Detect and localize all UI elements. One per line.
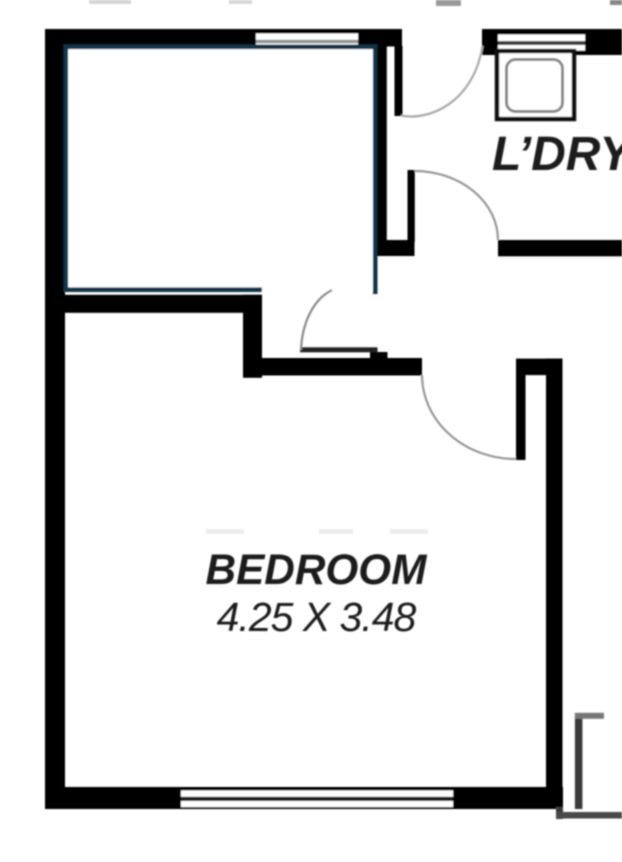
svg-text:BEDROOM: BEDROOM: [206, 546, 428, 593]
svg-text:4.25 X 3.48: 4.25 X 3.48: [217, 594, 417, 640]
svg-text:L’DRY: L’DRY: [492, 128, 622, 181]
